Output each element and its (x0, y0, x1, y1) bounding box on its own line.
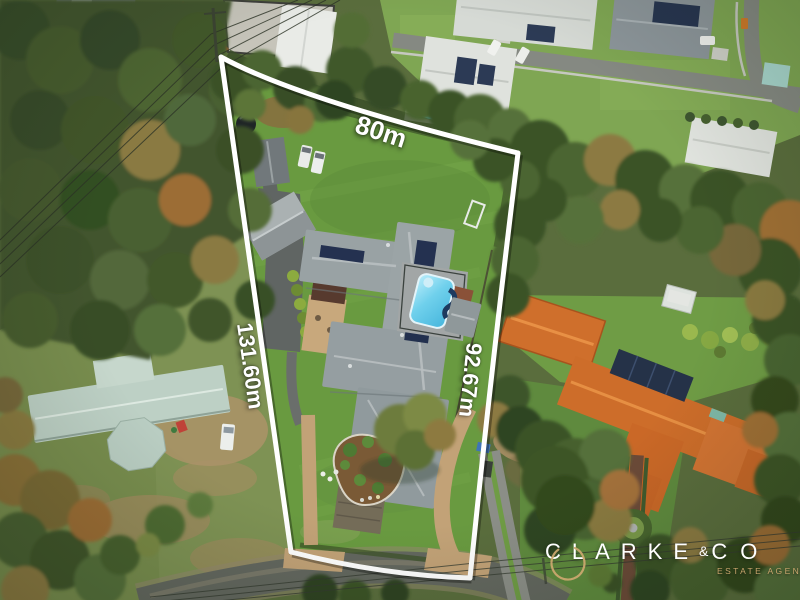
aerial-photo: 80m 131.60m 92.67m CLARKE&CO ESTATE AGEN… (0, 0, 800, 600)
watermark: CLARKE&CO ESTATE AGENTS (545, 540, 770, 564)
photo-canvas (0, 0, 800, 600)
teal-shed (762, 62, 791, 87)
house-top-3 (609, 0, 715, 59)
watermark-tagline: ESTATE AGENTS (717, 566, 800, 576)
brand-name-secondary: CO (711, 540, 770, 564)
watermark-logo-swoosh (545, 540, 591, 586)
brand-ampersand: & (699, 539, 708, 563)
